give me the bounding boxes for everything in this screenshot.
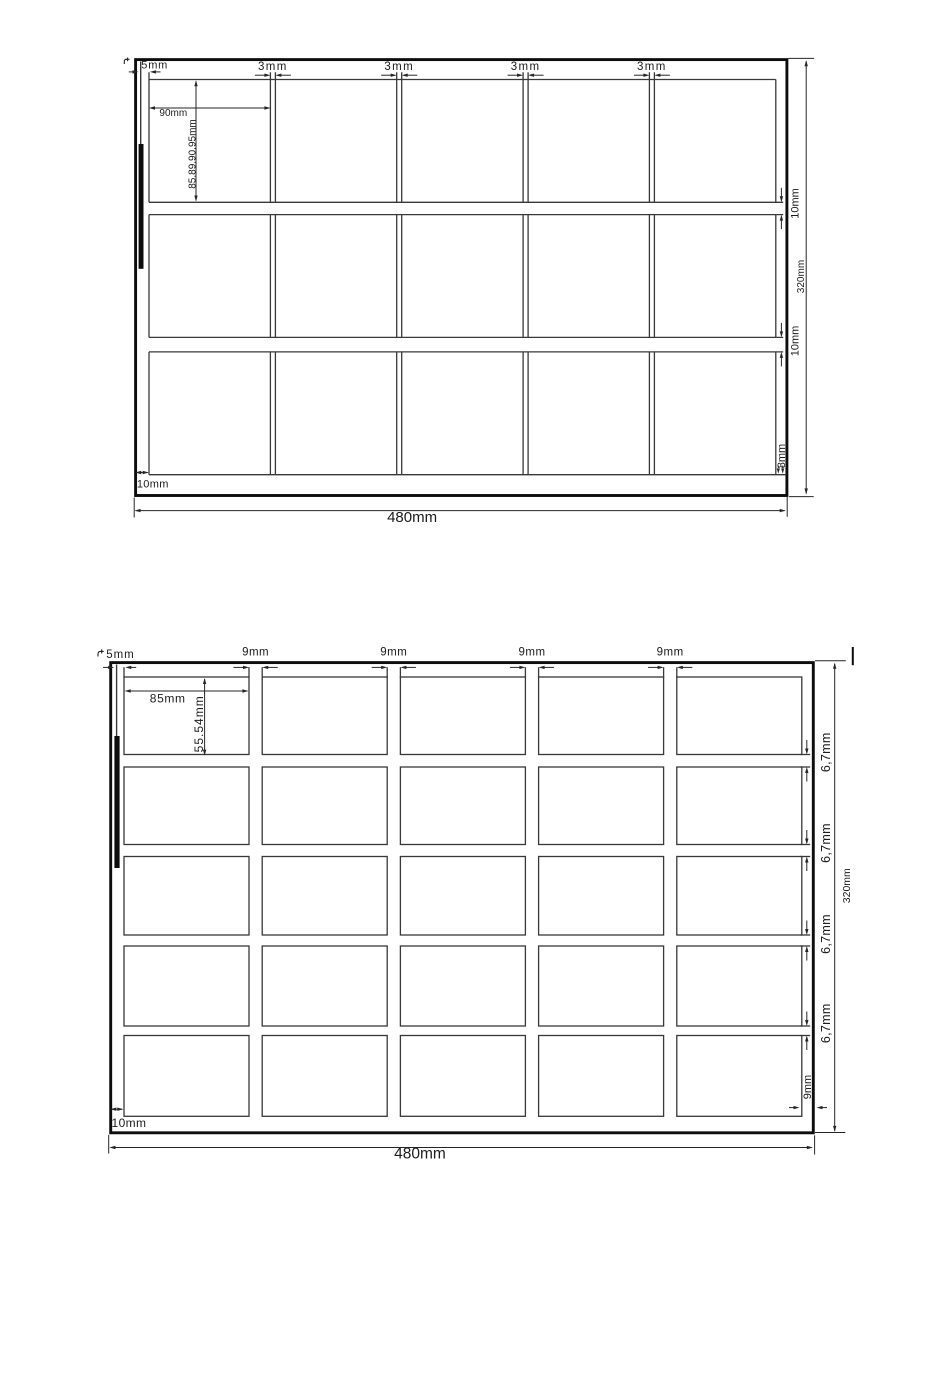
svg-text:480mm: 480mm [394, 1146, 446, 1163]
svg-text:3mm: 3mm [637, 61, 667, 73]
svg-text:3mm: 3mm [511, 61, 541, 73]
svg-text:3mm: 3mm [258, 61, 288, 73]
svg-text:10mm: 10mm [137, 479, 169, 491]
svg-text:6,7mm: 6,7mm [819, 823, 833, 863]
svg-text:85.89.90.95mm: 85.89.90.95mm [187, 119, 198, 189]
svg-text:10mm: 10mm [112, 1116, 147, 1130]
svg-text:8mm: 8mm [776, 444, 788, 468]
svg-text:6,7mm: 6,7mm [819, 732, 833, 772]
svg-text:90mm: 90mm [159, 108, 187, 119]
svg-text:9mm: 9mm [242, 646, 269, 658]
svg-text:85mm: 85mm [150, 691, 186, 705]
svg-text:9mm: 9mm [518, 646, 545, 658]
svg-text:5mm: 5mm [106, 649, 134, 661]
svg-text:3mm: 3mm [384, 61, 414, 73]
svg-text:6,7mm: 6,7mm [819, 1003, 833, 1043]
svg-text:320mm: 320mm [841, 868, 853, 903]
svg-text:480mm: 480mm [387, 509, 437, 526]
svg-text:9mm: 9mm [657, 646, 684, 658]
svg-text:6,7mm: 6,7mm [819, 914, 833, 954]
svg-text:9mm: 9mm [802, 1075, 814, 1099]
svg-text:5mm: 5mm [141, 60, 168, 72]
svg-text:10mm: 10mm [789, 326, 801, 357]
svg-text:55.54mm: 55.54mm [192, 695, 206, 752]
svg-text:10mm: 10mm [789, 188, 801, 219]
svg-text:320mm: 320mm [796, 260, 807, 293]
svg-text:9mm: 9mm [380, 646, 407, 658]
